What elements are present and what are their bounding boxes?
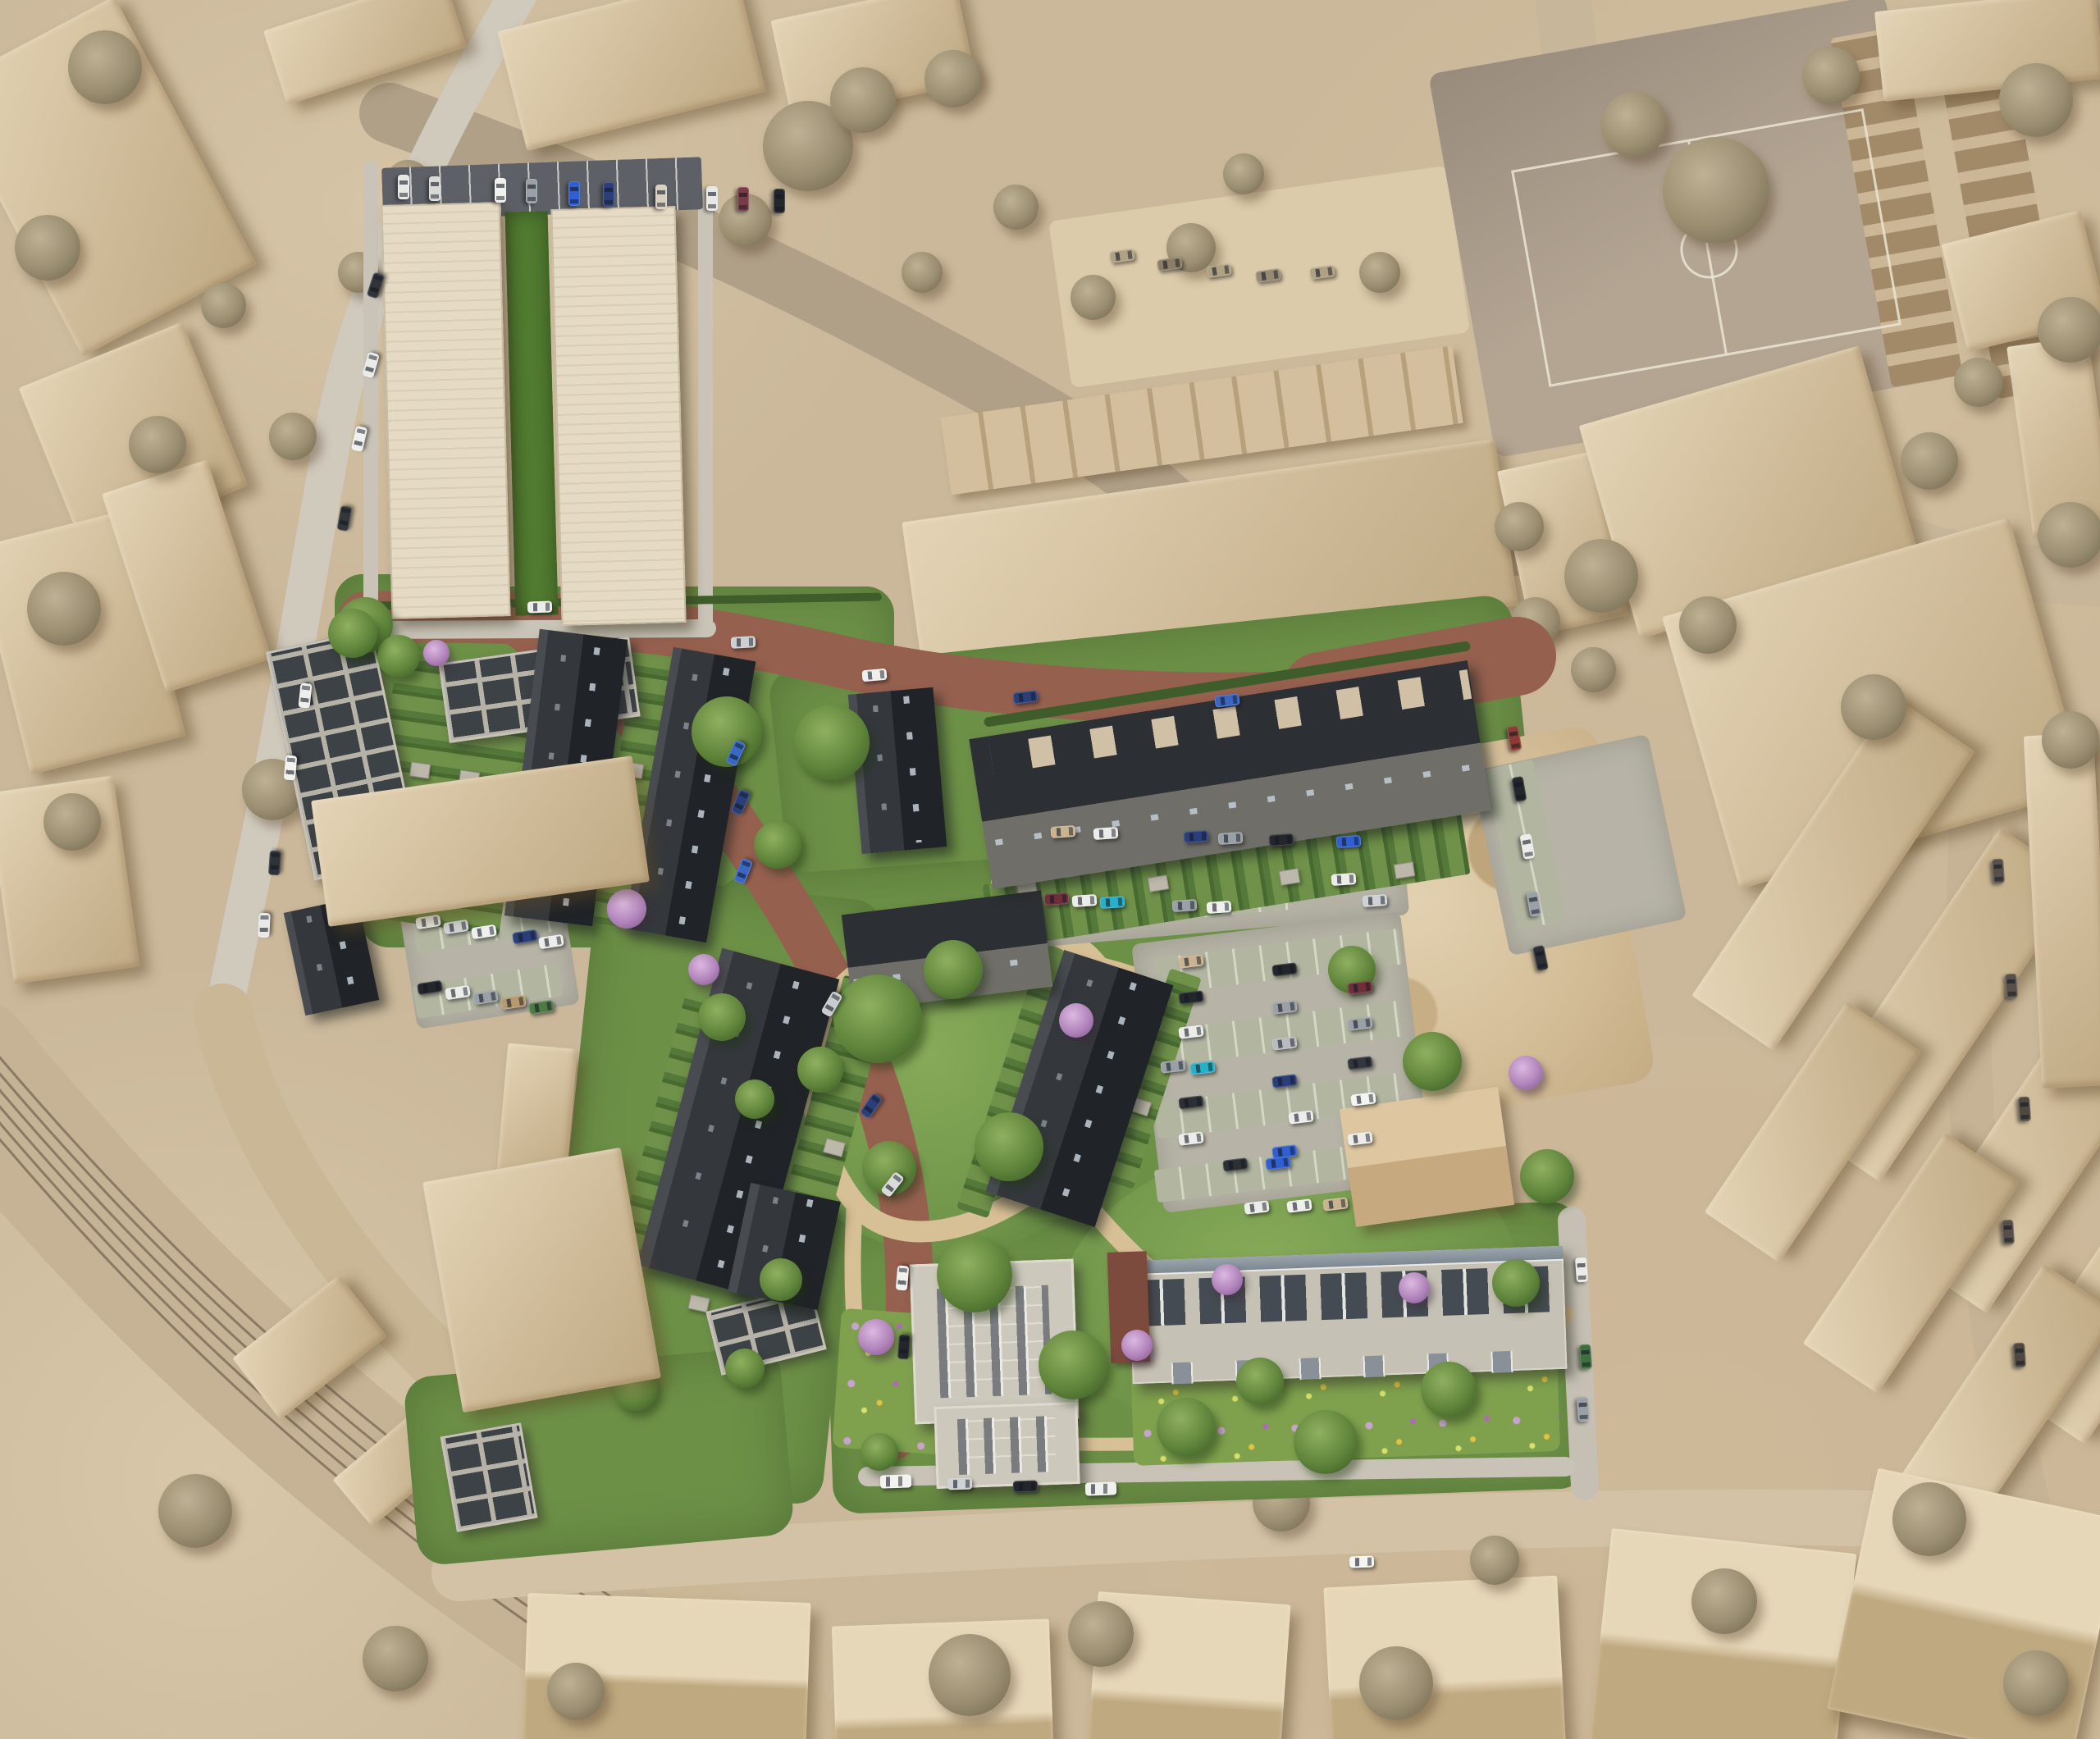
flowering-tree-8 [1212, 1264, 1243, 1295]
parked-car-41 [1172, 899, 1198, 912]
parked-car-10 [774, 189, 785, 213]
solar-flat-roof-building-3 [441, 1422, 538, 1532]
flowering-tree-4 [858, 1319, 894, 1355]
parked-car-9 [737, 187, 749, 212]
parked-car-21 [861, 669, 887, 682]
context-car-6 [1992, 859, 2005, 884]
parked-car-37 [1336, 835, 1362, 848]
parked-car-33 [1093, 827, 1119, 840]
parked-car-88 [1575, 1257, 1588, 1283]
terraced-house-row-4 [848, 687, 947, 854]
parked-car-16 [284, 755, 298, 780]
parked-car-90 [1577, 1397, 1590, 1422]
parked-car-2 [429, 176, 441, 201]
context-car-7 [2005, 974, 2018, 999]
tree-19 [1403, 1032, 1462, 1091]
parked-car-31 [897, 1335, 911, 1360]
apartment-building-roof-2 [934, 1402, 1080, 1489]
retained-context-building-3 [422, 1148, 661, 1413]
parked-car-18 [258, 913, 271, 938]
garden-shed-10 [1394, 861, 1416, 879]
parked-car-42 [1207, 901, 1232, 914]
garden-shed-1 [409, 761, 431, 778]
parked-car-87 [1349, 1555, 1374, 1568]
tree-13 [1157, 1398, 1216, 1457]
flowering-tree-7 [1509, 1056, 1543, 1090]
context-car-10 [2013, 1343, 2026, 1368]
flowering-tree-9 [423, 640, 450, 666]
parked-car-6 [603, 182, 614, 207]
parked-car-7 [655, 185, 667, 209]
garden-shed-8 [1148, 874, 1170, 892]
parked-car-84 [947, 1477, 972, 1490]
parked-car-89 [1579, 1344, 1592, 1370]
parked-car-19 [527, 600, 552, 613]
flowering-tree-5 [1121, 1330, 1153, 1361]
tree-27 [328, 609, 377, 658]
tree-26 [861, 1433, 898, 1471]
parked-car-30 [896, 1265, 910, 1290]
flowering-tree-3 [1059, 1003, 1093, 1038]
parked-car-38 [1044, 892, 1070, 906]
parked-car-4 [526, 179, 537, 203]
tree-5 [754, 821, 801, 869]
parked-car-32 [1051, 825, 1076, 838]
parked-car-40 [1100, 896, 1125, 909]
parked-car-34 [1184, 830, 1209, 843]
tree-16 [1421, 1362, 1477, 1417]
garden-shed-9 [1279, 868, 1301, 886]
tree-22 [735, 1079, 774, 1119]
tree-10 [797, 1047, 843, 1093]
parked-car-17 [268, 851, 281, 876]
parked-car-44 [1363, 894, 1388, 907]
parked-car-36 [1269, 833, 1294, 847]
parked-car-86 [1085, 1481, 1117, 1495]
aerial-masterplan-view [0, 0, 2100, 1739]
tree-11 [937, 1237, 1012, 1312]
context-car-9 [2002, 1220, 2015, 1245]
parked-car-8 [706, 186, 718, 211]
plank-roof-building-1 [381, 202, 510, 619]
tree-21 [698, 993, 746, 1041]
parked-car-43 [1331, 873, 1357, 886]
tree-14 [1236, 1358, 1284, 1405]
plank-roof-building-2 [550, 206, 686, 626]
tree-7 [924, 940, 983, 999]
parked-car-39 [1072, 894, 1098, 907]
parked-car-1 [398, 175, 409, 199]
parked-car-3 [495, 178, 506, 203]
flowering-tree-6 [688, 954, 719, 985]
tree-4 [794, 705, 870, 780]
context-car-8 [2018, 1097, 2031, 1122]
parked-car-35 [1218, 832, 1244, 845]
tree-17 [1492, 1259, 1540, 1307]
tree-8 [975, 1112, 1043, 1181]
tree-15 [1294, 1410, 1358, 1474]
parked-car-85 [1013, 1480, 1038, 1492]
parked-car-20 [731, 636, 756, 649]
flowering-tree-2 [607, 889, 646, 929]
parked-car-83 [880, 1474, 912, 1488]
tree-24 [760, 1258, 802, 1301]
tree-12 [1039, 1330, 1107, 1399]
parked-car-5 [568, 181, 580, 206]
flowering-tree-10 [1399, 1272, 1430, 1303]
tree-6 [833, 974, 922, 1063]
tree-18 [1520, 1149, 1574, 1203]
tree-25 [725, 1349, 765, 1388]
tree-2 [377, 635, 420, 678]
timber-barn-1 [1340, 1087, 1514, 1227]
